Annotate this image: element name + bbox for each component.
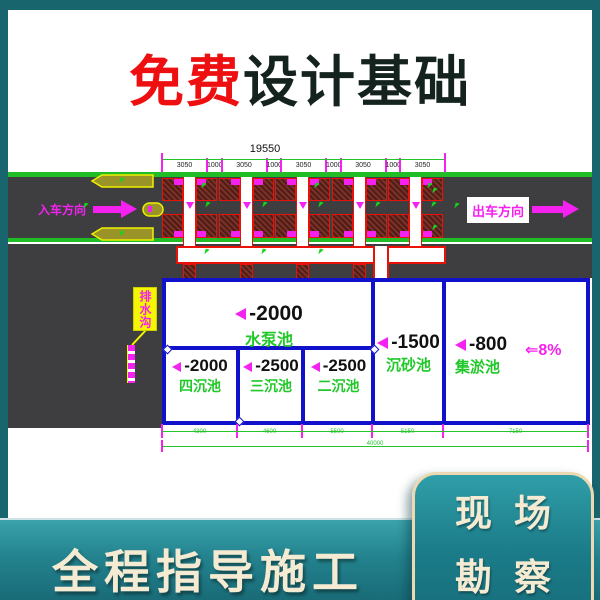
badge-box: 现场 勘察 (412, 472, 594, 600)
poster: 免费设计基础 305010003050100030501000305010003… (0, 0, 600, 600)
badge-line1: 现场 (433, 483, 573, 537)
badge-line2: 勘察 (433, 547, 573, 600)
title-rest: 设计基础 (243, 51, 471, 113)
title-highlight: 免费 (129, 51, 243, 113)
footer-banner-text: 全程指导施工 (52, 536, 364, 600)
page-title: 免费设计基础 (0, 52, 600, 113)
